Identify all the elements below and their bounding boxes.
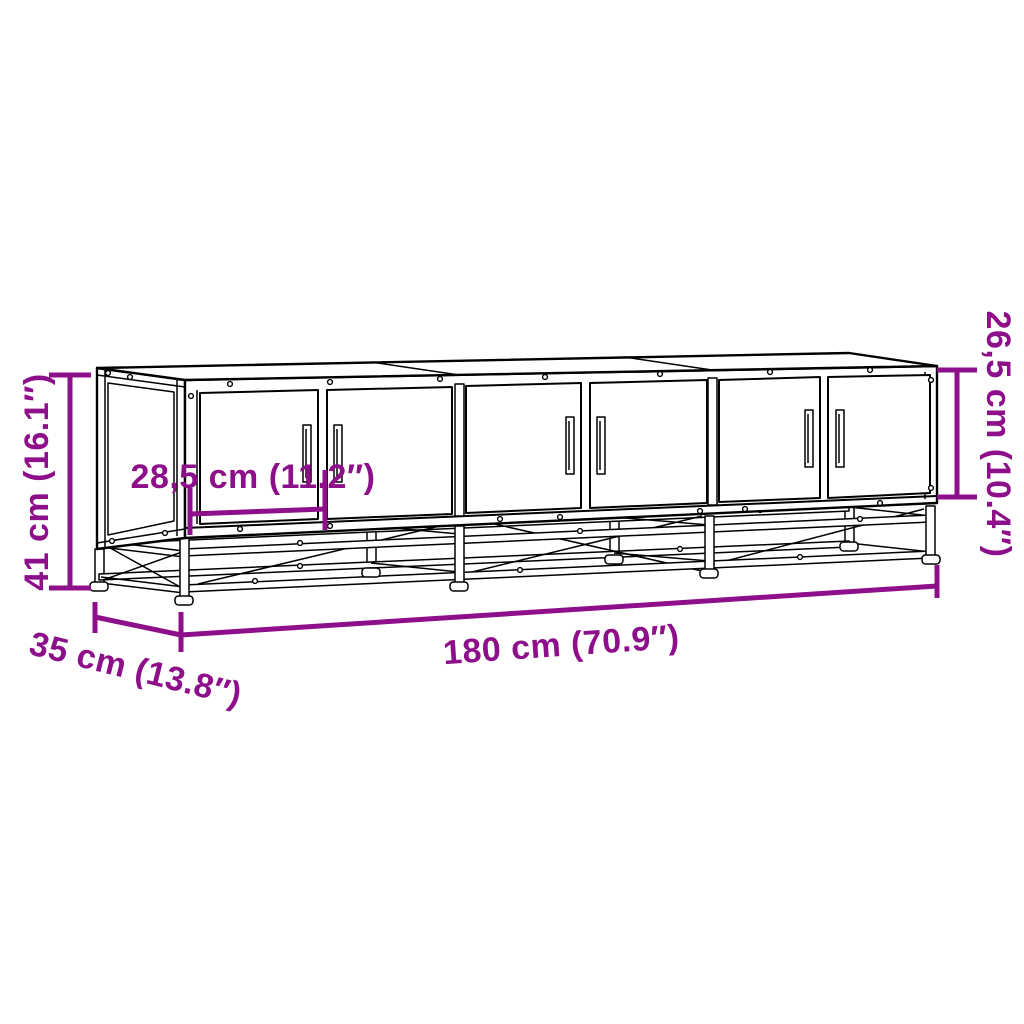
- handle: [566, 417, 574, 474]
- door-1: [200, 390, 318, 524]
- door-2: [327, 387, 452, 519]
- height-label: 41 cm (16.1″): [18, 373, 56, 590]
- door-width-label: 28,5 cm (11.2″): [131, 458, 376, 496]
- door-4: [590, 380, 707, 508]
- dimension-depth: 35 cm (13.8″): [26, 602, 246, 714]
- width-label: 180 cm (70.9″): [442, 618, 681, 672]
- dimension-diagram-canvas: 41 cm (16.1″) 28,5 cm (11.2″) 26,5 cm (1…: [0, 0, 1024, 1024]
- handle: [836, 410, 844, 467]
- dimension-height: 41 cm (16.1″): [18, 373, 91, 590]
- handle: [805, 410, 813, 467]
- furniture-dimension-diagram: 41 cm (16.1″) 28,5 cm (11.2″) 26,5 cm (1…: [0, 0, 1024, 1024]
- handle: [597, 417, 605, 474]
- dimension-door-height: 26,5 cm (10.4″): [937, 311, 1017, 558]
- depth-label: 35 cm (13.8″): [26, 625, 246, 714]
- door-height-label: 26,5 cm (10.4″): [979, 311, 1017, 558]
- door-3: [466, 383, 581, 513]
